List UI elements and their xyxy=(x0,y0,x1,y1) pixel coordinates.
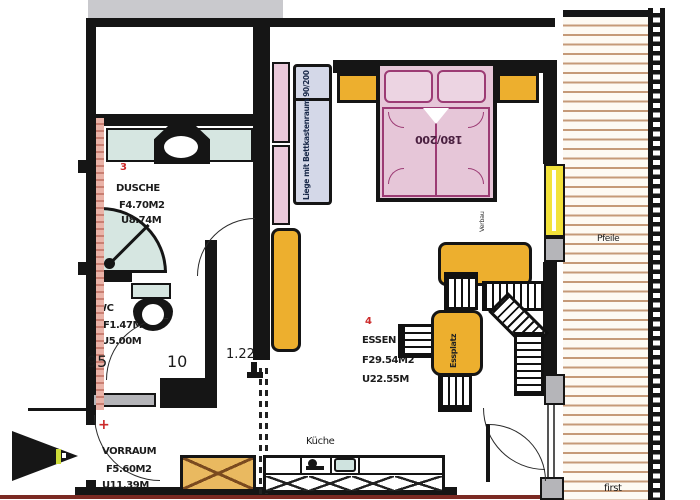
nightstand-left xyxy=(337,73,379,103)
survey-cross-mark: + xyxy=(98,417,109,433)
liege-label: Liege mit Bettkastenraum 90/200 xyxy=(302,68,311,200)
sideboard-vertical xyxy=(271,228,301,352)
bed-side-note: Verbau xyxy=(478,212,486,232)
bathroom-door-swing xyxy=(197,218,255,276)
liege-daybed xyxy=(293,64,332,205)
dining-table-label: Essplatz xyxy=(449,334,458,368)
balcony-door-threshold-1 xyxy=(547,405,549,477)
kitchen-divider-v1 xyxy=(300,457,302,473)
balcony-frame-top xyxy=(563,10,650,17)
room-name-vorraum: VORRAUM xyxy=(102,446,156,457)
room-name-dusche: DUSCHE xyxy=(116,183,160,194)
kitchen-divider-v2 xyxy=(330,457,332,473)
balcony-railing-rail-left xyxy=(648,8,653,500)
balcony-door-threshold-2 xyxy=(553,405,555,477)
wall-post-gray-1 xyxy=(544,237,565,262)
bottom-maroon-line xyxy=(0,495,557,499)
wall-bath-top xyxy=(88,114,270,126)
kitchen-divider-h xyxy=(266,473,442,475)
bed-size-label: 180/200 xyxy=(409,133,469,146)
room-number-dusche: 3 xyxy=(120,162,127,173)
balcony-bottom-label: first xyxy=(604,483,622,494)
kitchen-boundary-dashed-1 xyxy=(259,368,262,494)
toilet-bowl-inner xyxy=(142,304,164,325)
room-perimeter-dusche: U8.74M xyxy=(121,215,161,226)
kitchen-cabinet-x4 xyxy=(395,476,442,491)
room-area-dusche: F4.70M2 xyxy=(119,200,165,211)
exterior-gray-area xyxy=(88,0,283,18)
bed-fold-triangle xyxy=(423,108,449,124)
kitchen-divider-v3 xyxy=(358,457,360,473)
balcony-railing-rail-right xyxy=(660,8,665,500)
entrance-arrow-icon xyxy=(12,429,82,483)
nightstand-right xyxy=(497,73,539,103)
corner-bench-right xyxy=(514,332,544,396)
balcony-label: Pfeile xyxy=(597,234,619,244)
dimension-opening: 1.22 xyxy=(226,347,255,362)
wall-tick-lower xyxy=(78,262,96,275)
wardrobe-shelf-lower xyxy=(272,145,290,225)
room-perimeter-essen: U22.55M xyxy=(362,374,409,385)
wall-post-gray-2 xyxy=(544,374,565,405)
bed-pillow-left xyxy=(384,70,433,103)
wall-top xyxy=(88,18,555,27)
kitchen-faucet-spout xyxy=(306,466,324,470)
kitchen-cabinet-x2 xyxy=(309,476,351,491)
exterior-thin-line xyxy=(28,408,88,411)
wall-interior-vertical xyxy=(253,27,270,360)
shower-hinge-dot xyxy=(104,258,115,269)
wall-right-upper xyxy=(543,73,557,164)
kitchen-cabinet-x3 xyxy=(352,476,394,491)
bed-pillow-right xyxy=(437,70,486,103)
balcony-decking xyxy=(563,17,648,500)
wall-vorraum-top xyxy=(160,378,217,408)
kitchen-cabinet-x1 xyxy=(266,476,308,491)
window-center-line xyxy=(552,170,556,231)
dimension-wc-door: 95 xyxy=(87,352,107,371)
dining-chair-bottom xyxy=(438,374,472,412)
room-name-kueche: Küche xyxy=(306,436,334,447)
door-stop-mark-2 xyxy=(251,362,257,378)
room-number-essen: 4 xyxy=(365,316,372,327)
kitchen-sink xyxy=(334,458,356,472)
floor-plan: Pfeile first 180/200 Verbau Liege mit Be… xyxy=(0,0,700,500)
wall-right-lower xyxy=(543,262,557,375)
room-area-vorraum: F5.60M2 xyxy=(106,464,152,475)
vorraum-wardrobe xyxy=(180,455,256,492)
room-perimeter-vorraum: U11.39M xyxy=(102,480,149,491)
wardrobe-shelf-upper xyxy=(272,62,290,143)
dimension-wall: 10 xyxy=(167,352,187,371)
liege-divider xyxy=(296,98,329,101)
washbasin-bowl xyxy=(164,136,198,158)
wall-tick-upper xyxy=(78,160,96,173)
dining-chair-top xyxy=(444,272,478,310)
